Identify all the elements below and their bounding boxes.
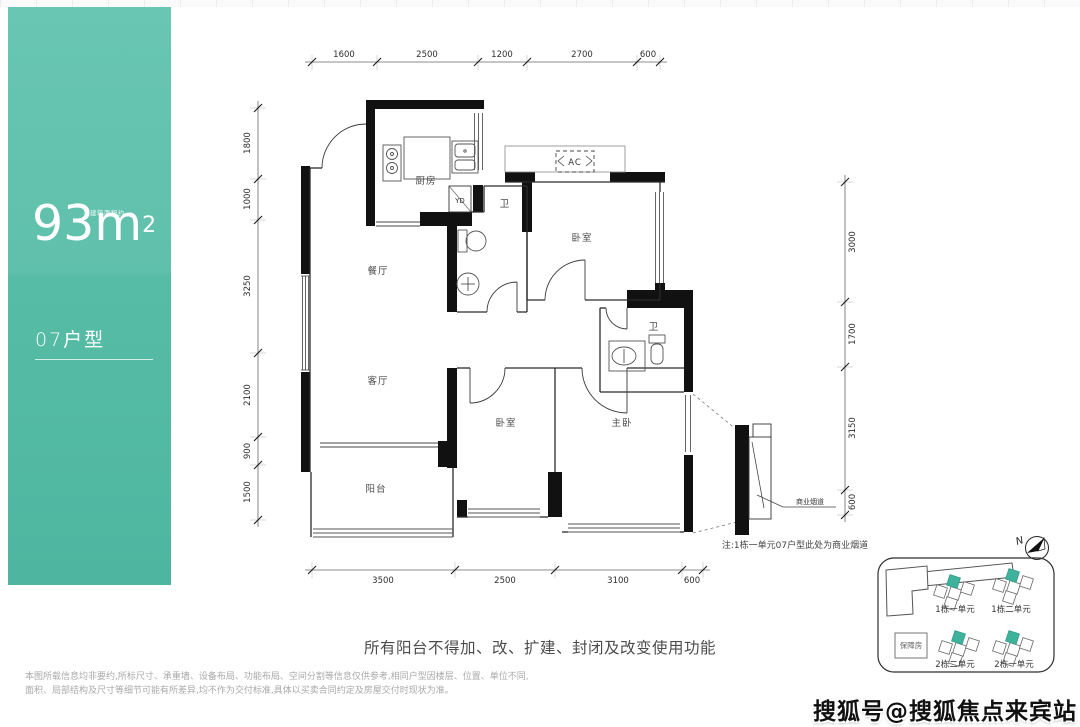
toilet-bowl [651,344,663,364]
balcony-notice: 所有阳台不得加、改、扩建、封闭及改变使用功能 [364,636,716,658]
highlighted-unit [1006,631,1020,645]
affordable-housing-label: 保障房 [900,640,923,650]
label-bath2: 卫 [649,322,660,333]
flue-note: 注:1栋一单元07户型此处为商业烟道 [722,539,868,551]
walls [301,100,693,532]
disclaimer: 本图所载信息均非要约,所标尺寸、承重墙、设备布局、功能布局、空间分割等信息仅供参… [25,670,529,698]
dim-bottom-1: 3500 [372,576,394,586]
dim-top-5: 600 [640,50,656,60]
highlighted-unit [952,631,966,645]
label-bath1: 卫 [500,199,511,210]
dim-bottom-2: 2500 [494,576,516,586]
affordable-housing-block: 保障房 [895,633,927,658]
label-bedroom-top: 卧室 [571,232,592,244]
floor-plan-svg: 1600 2500 1200 2700 600 1800 1000 3250 2… [0,0,1080,727]
floorplan-page: { "left_panel": { "area_prefix_label": "… [0,0,1080,727]
flue-label: 商业烟道 [796,497,824,506]
dim-top-1: 1600 [333,50,355,60]
dim-bottom-4: 600 [684,576,700,586]
dim-top-4: 2700 [571,50,593,60]
dim-bottom-3: 3100 [607,576,629,586]
dim-right-2: 1700 [848,323,858,345]
yd-shaft: YD [449,186,471,212]
ac-label: AC [568,158,582,168]
dim-left-5: 900 [243,443,253,459]
site-plan: 1栋一单元 1栋二单元 2栋二单元 2栋一单元 保障房 [878,558,1054,672]
dim-top-2: 2500 [416,50,438,60]
label-kitchen: 厨房 [415,175,436,187]
toilet-tank [649,335,665,343]
yd-label: YD [454,197,465,205]
label-bedroom-mid: 卧室 [495,417,516,429]
site-label-1: 1栋一单元 [935,604,975,615]
site-label-2: 1栋二单元 [991,604,1031,615]
north-compass: N [1015,535,1049,560]
dim-left-2: 1000 [243,188,253,210]
label-living: 客厅 [367,375,388,387]
dim-left-1: 1800 [243,132,253,154]
dim-left-4: 2100 [243,384,253,406]
kitchen-fixtures [383,137,478,181]
dim-top-3: 1200 [491,50,513,60]
dim-right-4: 600 [848,494,858,510]
watermark: 搜狐号@搜狐焦点来宾站 [813,692,1077,726]
stove [383,145,401,181]
site-label-4: 2栋一单元 [994,659,1034,670]
ac-platform: AC [505,146,625,172]
toilet-bowl [466,231,486,251]
flue-detail: 商业烟道 注:1栋一单元07户型此处为商业烟道 [693,394,868,551]
kitchen-counter [404,137,450,179]
bath2-fixtures [609,335,665,371]
disclaimer-line-1: 本图所载信息均非要约,所标尺寸、承重墙、设备布局、功能布局、空间分割等信息仅供参… [25,670,529,684]
bath1-fixtures [457,230,486,295]
dim-left-3: 3250 [243,275,253,297]
disclaimer-line-2: 面积、局部结构及尺寸等细节可能有所差异,均不作为交付标准,具体以买卖合同约定及房… [25,684,529,698]
site-building-l [886,566,928,616]
site-label-3: 2栋二单元 [935,659,975,670]
sliding-doors [320,222,438,447]
north-label: N [1015,535,1026,548]
label-dining: 餐厅 [367,265,388,277]
label-balcony: 阳台 [365,483,386,495]
basin-counter [609,341,645,371]
label-master: 主卧 [611,417,632,429]
dim-left-6: 1500 [243,481,253,503]
dim-right-3: 3150 [848,417,858,439]
dim-right-1: 3000 [848,231,858,253]
